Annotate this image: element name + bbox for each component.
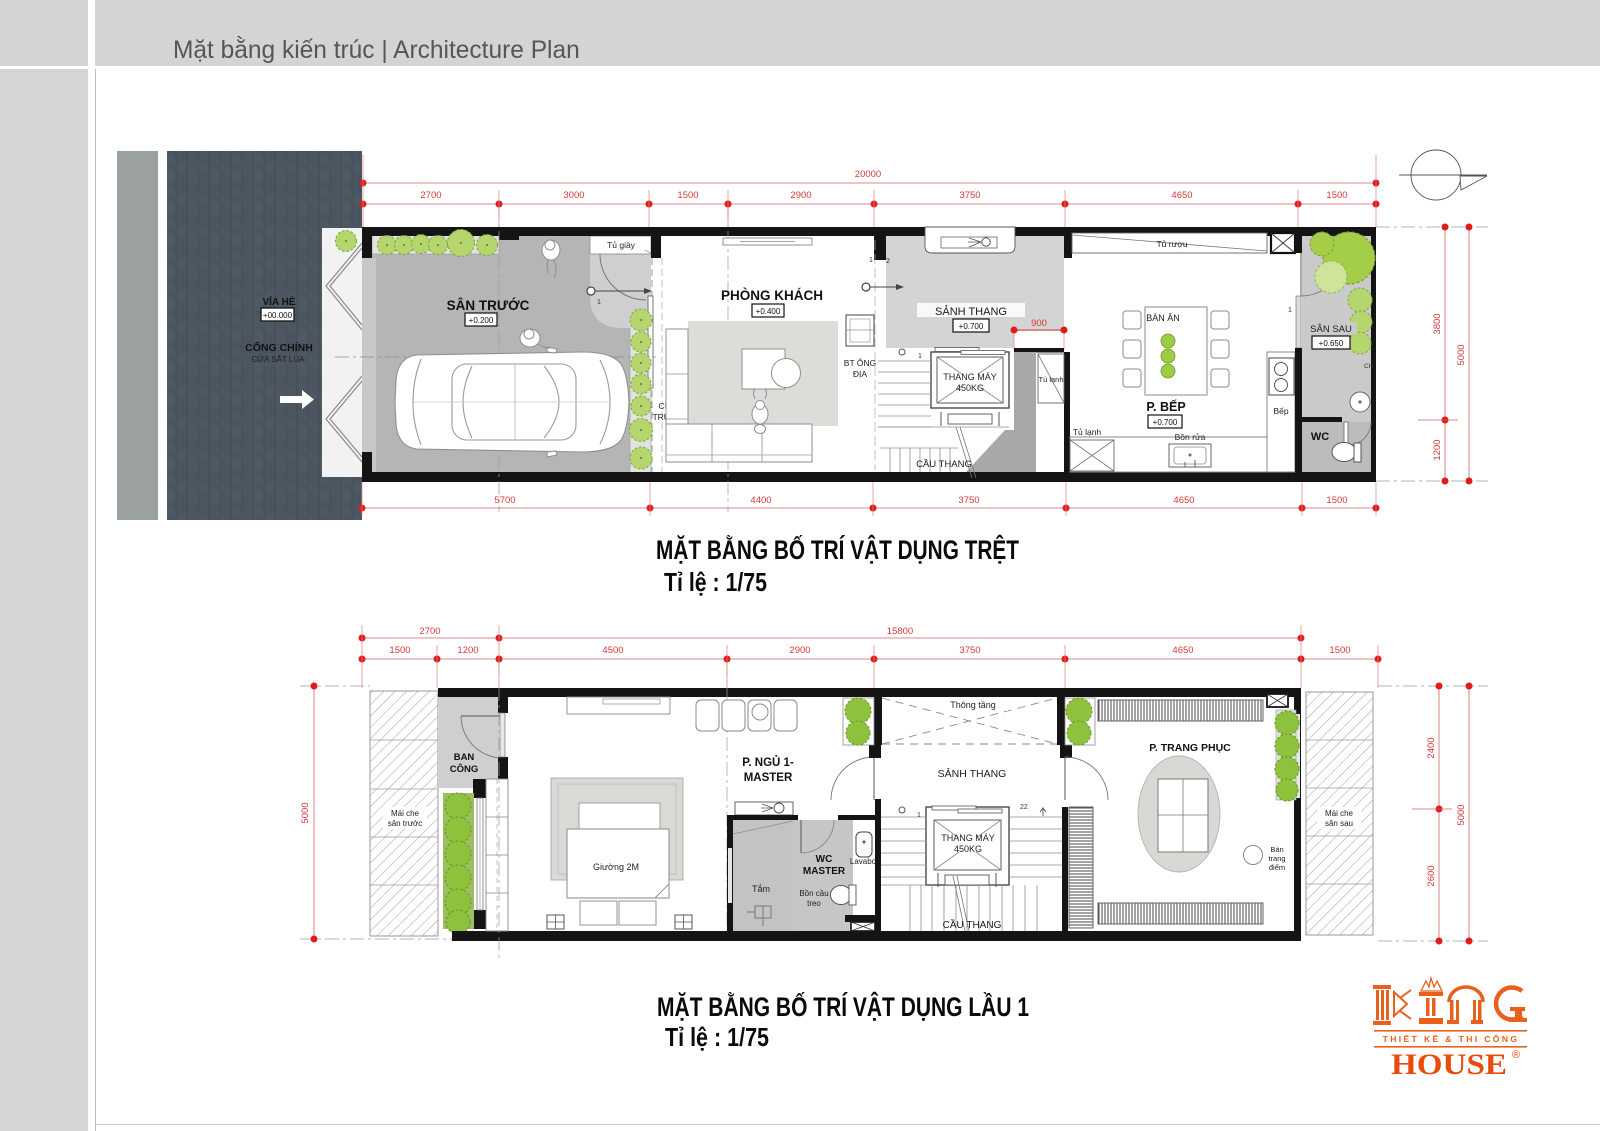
- svg-text:1500: 1500: [677, 190, 698, 201]
- svg-text:3000: 3000: [563, 190, 584, 201]
- svg-text:5700: 5700: [494, 495, 515, 506]
- svg-text:THANG MÁY: THANG MÁY: [941, 833, 995, 843]
- svg-text:MẶT BẰNG BỐ TRÍ VẬT DỤNG TRỆT: MẶT BẰNG BỐ TRÍ VẬT DỤNG TRỆT: [656, 533, 1019, 565]
- svg-text:2900: 2900: [789, 645, 810, 656]
- svg-text:HOUSE: HOUSE: [1391, 1048, 1507, 1081]
- svg-text:SẢNH THANG: SẢNH THANG: [935, 305, 1007, 318]
- svg-text:MẶT BẰNG BỐ TRÍ VẬT DỤNG LẦU 1: MẶT BẰNG BỐ TRÍ VẬT DỤNG LẦU 1: [657, 990, 1029, 1022]
- svg-text:treo: treo: [807, 899, 821, 908]
- svg-text:CÔNG: CÔNG: [450, 763, 479, 775]
- svg-text:Tỉ lệ : 1/75: Tỉ lệ : 1/75: [664, 567, 767, 597]
- svg-text:+0.700: +0.700: [959, 322, 984, 331]
- svg-text:5000: 5000: [300, 802, 311, 823]
- svg-text:4650: 4650: [1172, 645, 1193, 656]
- svg-text:Bồn rửa: Bồn rửa: [1175, 432, 1206, 442]
- svg-text:Tủ giày: Tủ giày: [607, 240, 636, 250]
- svg-text:PHÒNG KHÁCH: PHÒNG KHÁCH: [721, 288, 823, 303]
- svg-text:22: 22: [1020, 804, 1028, 811]
- svg-text:2600: 2600: [1426, 865, 1437, 886]
- svg-text:1: 1: [918, 353, 922, 360]
- svg-text:Mái che: Mái che: [1325, 809, 1354, 818]
- svg-text:+00.000: +00.000: [263, 311, 293, 320]
- svg-text:trang: trang: [1268, 854, 1285, 863]
- svg-text:+0.400: +0.400: [756, 307, 781, 316]
- svg-text:VỈA HÈ: VỈA HÈ: [263, 295, 296, 308]
- svg-text:Tủ lạnh: Tủ lạnh: [1038, 375, 1063, 384]
- svg-text:BT ÔNG: BT ÔNG: [844, 358, 876, 368]
- svg-text:WC: WC: [816, 854, 833, 865]
- svg-text:THANG MÁY: THANG MÁY: [943, 372, 997, 382]
- svg-text:1: 1: [917, 812, 921, 819]
- svg-text:3750: 3750: [959, 645, 980, 656]
- svg-text:ĐỊA: ĐỊA: [853, 369, 868, 379]
- svg-text:sân sau: sân sau: [1325, 819, 1353, 828]
- svg-text:4500: 4500: [602, 645, 623, 656]
- svg-text:THIẾT KẾ & THI CÔNG: THIẾT KẾ & THI CÔNG: [1383, 1033, 1520, 1044]
- svg-text:P. BẾP: P. BẾP: [1146, 399, 1185, 414]
- svg-text:3750: 3750: [959, 190, 980, 201]
- svg-text:3800: 3800: [1432, 313, 1443, 334]
- svg-text:5000: 5000: [1456, 344, 1467, 365]
- svg-text:+0.650: +0.650: [1319, 339, 1344, 348]
- svg-text:CỬA SẮT LÙA: CỬA SẮT LÙA: [252, 355, 306, 364]
- svg-text:P. NGỦ 1-: P. NGỦ 1-: [742, 756, 794, 769]
- svg-text:CỔNG CHÍNH: CỔNG CHÍNH: [245, 341, 313, 354]
- svg-text:2900: 2900: [790, 190, 811, 201]
- svg-text:Bồn cầu: Bồn cầu: [799, 889, 828, 898]
- svg-text:CH: CH: [1364, 363, 1374, 370]
- svg-text:BÀN ĂN: BÀN ĂN: [1146, 313, 1180, 323]
- svg-text:1500: 1500: [389, 645, 410, 656]
- svg-text:3750: 3750: [958, 495, 979, 506]
- svg-text:1: 1: [1288, 307, 1292, 314]
- svg-text:4650: 4650: [1171, 190, 1192, 201]
- svg-text:1500: 1500: [1329, 645, 1350, 656]
- svg-text:Lavabo: Lavabo: [850, 857, 877, 866]
- svg-text:Tủ rượu: Tủ rượu: [1156, 239, 1187, 249]
- svg-text:®: ®: [1512, 1049, 1520, 1061]
- svg-text:Tỉ lệ : 1/75: Tỉ lệ : 1/75: [665, 1022, 769, 1052]
- svg-text:điểm: điểm: [1269, 863, 1285, 872]
- svg-text:SÂN TRƯỚC: SÂN TRƯỚC: [447, 298, 530, 313]
- svg-text:900: 900: [1031, 318, 1047, 329]
- svg-text:2700: 2700: [419, 626, 440, 637]
- svg-text:SÂN SAU: SÂN SAU: [1310, 324, 1352, 335]
- svg-text:Thông tầng: Thông tầng: [950, 700, 996, 710]
- svg-text:Tắm: Tắm: [752, 884, 770, 894]
- svg-text:450KG: 450KG: [956, 383, 984, 393]
- svg-text:1500: 1500: [1326, 495, 1347, 506]
- svg-text:Tủ lạnh: Tủ lạnh: [1073, 427, 1102, 437]
- svg-text:Giường 2M: Giường 2M: [593, 862, 639, 872]
- svg-text:CẦU THANG: CẦU THANG: [943, 918, 1002, 931]
- svg-text:WC: WC: [1311, 431, 1329, 443]
- svg-text:450KG: 450KG: [954, 844, 982, 854]
- svg-text:Mái che: Mái che: [391, 809, 420, 818]
- svg-text:2400: 2400: [1426, 737, 1437, 758]
- svg-text:sân trước: sân trước: [388, 819, 423, 828]
- svg-text:MASTER: MASTER: [744, 772, 793, 784]
- svg-text:1: 1: [597, 299, 601, 306]
- svg-text:2700: 2700: [420, 190, 441, 201]
- svg-text:Bếp: Bếp: [1273, 406, 1288, 416]
- svg-text:1200: 1200: [1432, 439, 1443, 460]
- svg-text:CẦU THANG: CẦU THANG: [916, 459, 972, 470]
- svg-text:4650: 4650: [1173, 495, 1194, 506]
- svg-text:P. TRANG PHỤC: P. TRANG PHỤC: [1149, 742, 1231, 754]
- svg-text:2: 2: [886, 258, 890, 265]
- svg-text:MASTER: MASTER: [803, 866, 846, 877]
- svg-text:+0.200: +0.200: [469, 316, 494, 325]
- svg-text:SẢNH THANG: SẢNH THANG: [938, 767, 1007, 780]
- svg-text:Bàn: Bàn: [1270, 845, 1283, 854]
- svg-text:5000: 5000: [1456, 804, 1467, 825]
- svg-text:BAN: BAN: [454, 752, 475, 763]
- svg-text:1: 1: [869, 257, 873, 264]
- svg-text:1500: 1500: [1326, 190, 1347, 201]
- svg-text:15800: 15800: [887, 626, 913, 637]
- svg-text:20000: 20000: [855, 169, 881, 180]
- svg-text:4400: 4400: [750, 495, 771, 506]
- svg-text:+0.700: +0.700: [1153, 418, 1178, 427]
- svg-text:1200: 1200: [457, 645, 478, 656]
